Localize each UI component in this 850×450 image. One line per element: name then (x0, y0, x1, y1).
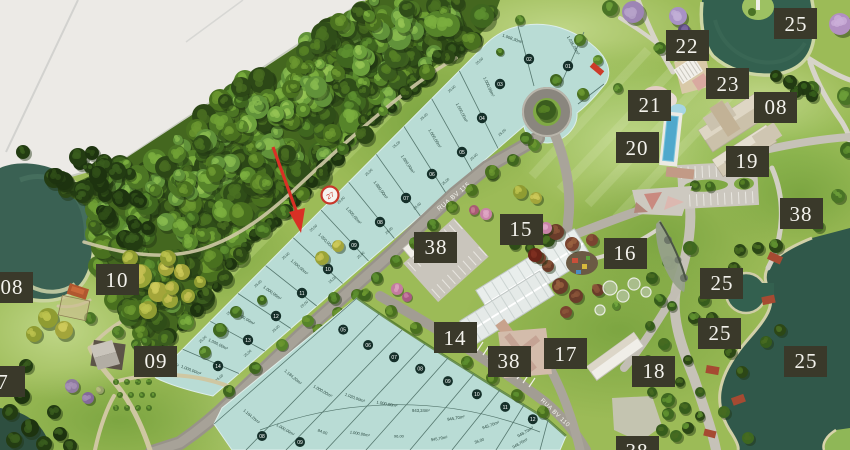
svg-text:08: 08 (417, 367, 423, 373)
svg-text:7: 7 (0, 370, 9, 394)
svg-text:07: 07 (391, 355, 397, 361)
svg-text:08: 08 (377, 220, 383, 226)
svg-text:09: 09 (351, 243, 357, 249)
svg-text:19: 19 (736, 149, 759, 173)
svg-text:20: 20 (626, 136, 649, 160)
svg-text:09: 09 (145, 349, 168, 373)
svg-text:05: 05 (340, 327, 346, 333)
svg-text:15: 15 (510, 217, 533, 241)
svg-text:11: 11 (299, 291, 304, 297)
svg-text:06: 06 (365, 343, 371, 349)
svg-text:38: 38 (425, 235, 448, 259)
svg-text:05: 05 (459, 150, 465, 156)
svg-text:07: 07 (403, 196, 409, 202)
svg-text:04: 04 (479, 116, 485, 122)
svg-text:17: 17 (555, 342, 578, 366)
svg-text:25: 25 (711, 271, 734, 295)
svg-text:13: 13 (245, 338, 251, 344)
svg-text:25: 25 (795, 349, 818, 373)
svg-text:38: 38 (626, 439, 649, 450)
svg-text:14: 14 (215, 364, 221, 370)
svg-text:12: 12 (273, 314, 279, 320)
svg-text:14: 14 (444, 326, 467, 350)
svg-text:10: 10 (106, 268, 129, 292)
svg-text:943,24m²: 943,24m² (412, 408, 430, 413)
svg-text:18: 18 (643, 359, 666, 383)
svg-text:38: 38 (498, 349, 521, 373)
svg-text:23: 23 (717, 72, 740, 96)
svg-text:01: 01 (565, 64, 571, 70)
svg-text:06: 06 (429, 172, 435, 178)
svg-text:10: 10 (325, 267, 331, 273)
svg-text:02: 02 (526, 57, 532, 63)
svg-text:38: 38 (790, 202, 813, 226)
svg-text:16: 16 (614, 241, 637, 265)
svg-text:25: 25 (709, 321, 732, 345)
svg-text:96,00: 96,00 (394, 433, 405, 438)
svg-text:08: 08 (765, 95, 788, 119)
svg-text:11: 11 (503, 405, 508, 411)
svg-text:10: 10 (474, 392, 480, 398)
svg-text:09: 09 (445, 379, 451, 385)
svg-text:21: 21 (639, 93, 662, 117)
svg-text:03: 03 (497, 82, 503, 88)
svg-text:09: 09 (297, 440, 303, 446)
svg-text:08: 08 (1, 275, 24, 299)
svg-text:12: 12 (530, 417, 536, 423)
svg-text:25: 25 (785, 12, 808, 36)
svg-text:22: 22 (676, 34, 699, 58)
svg-text:08: 08 (259, 434, 265, 440)
